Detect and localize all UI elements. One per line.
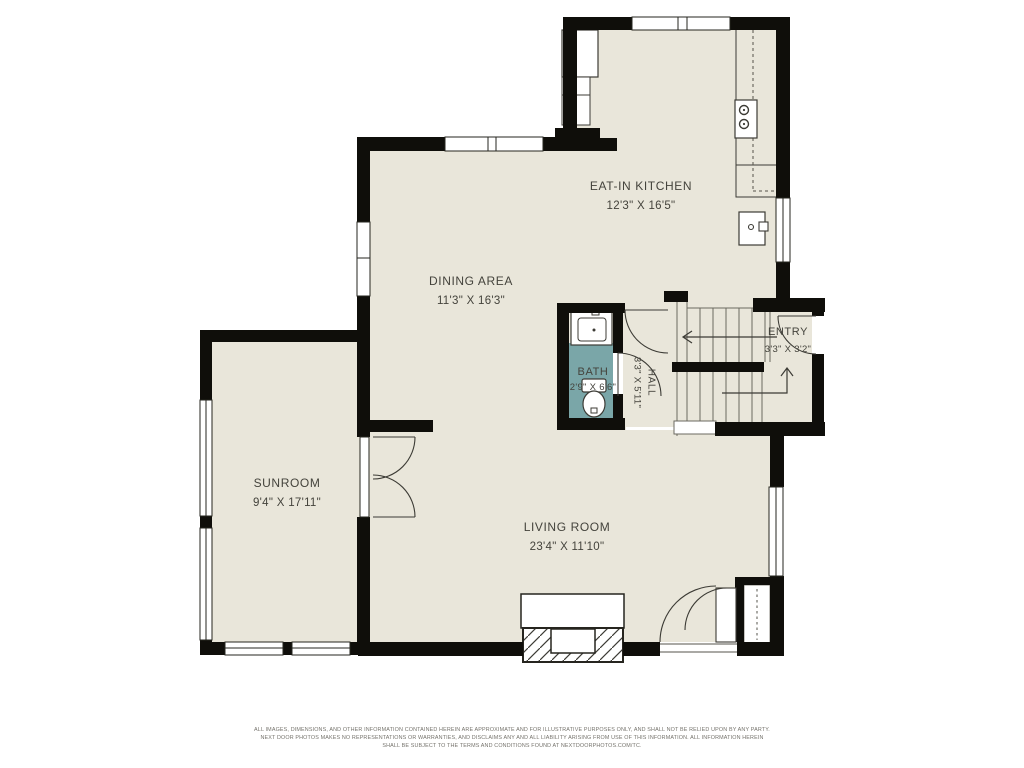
disclaimer: ALL IMAGES, DIMENSIONS, AND OTHER INFORM… [0, 726, 1024, 750]
room-name: EAT-IN KITCHEN [541, 179, 741, 193]
room-name: ENTRY [738, 326, 838, 338]
room-dimensions: 11'3" X 16'3" [371, 295, 571, 307]
room-dimensions: 9'4" X 17'11" [187, 497, 387, 509]
stove-icon [735, 100, 757, 138]
room-name: BATH [553, 366, 633, 378]
room-label-hall: HALL 3'3" X 5'11" [632, 347, 657, 419]
sunroom-bottom-window-left [225, 642, 283, 655]
stair-landing [674, 421, 716, 434]
room-dimensions: 12'3" X 16'5" [541, 200, 741, 212]
room-name: LIVING ROOM [467, 520, 667, 534]
dining-left-window [357, 222, 370, 296]
living-door-threshold [660, 642, 737, 656]
sunroom-bottom-window-right [292, 642, 350, 655]
room-dimensions: 23'4" X 11'10" [467, 541, 667, 553]
room-name: HALL [646, 347, 657, 419]
disclaimer-line-3: SHALL BE SUBJECT TO THE TERMS AND CONDIT… [0, 742, 1024, 750]
room-label-sunroom: SUNROOM 9'4" X 17'11" [187, 476, 387, 509]
kitchen-sink-icon [739, 212, 768, 245]
room-name: DINING AREA [371, 274, 571, 288]
disclaimer-line-2: NEXT DOOR PHOTOS MAKES NO REPRESENTATION… [0, 734, 1024, 742]
room-label-bath: BATH 2'9" X 6'6" [553, 366, 633, 393]
floor-plan-canvas: EAT-IN KITCHEN 12'3" X 16'5" DINING AREA… [0, 0, 1024, 768]
room-label-entry: ENTRY 3'3" X 3'2" [738, 326, 838, 355]
floor-plan-drawing [0, 0, 1024, 768]
room-label-eat-in-kitchen: EAT-IN KITCHEN 12'3" X 16'5" [541, 179, 741, 212]
room-name: SUNROOM [187, 476, 387, 490]
dining-top-window [445, 137, 543, 151]
coat-closet [744, 585, 770, 643]
room-label-living-room: LIVING ROOM 23'4" X 11'10" [467, 520, 667, 553]
sunroom-left-window-lower [200, 528, 212, 640]
fireplace [521, 594, 624, 662]
room-label-dining-area: DINING AREA 11'3" X 16'3" [371, 274, 571, 307]
kitchen-right-window [776, 198, 790, 262]
room-dimensions: 3'3" X 5'11" [632, 347, 643, 419]
kitchen-top-window [632, 17, 730, 30]
living-right-window [769, 487, 783, 576]
room-dimensions: 3'3" X 3'2" [738, 344, 838, 355]
room-dimensions: 2'9" X 6'6" [553, 382, 633, 393]
disclaimer-line-1: ALL IMAGES, DIMENSIONS, AND OTHER INFORM… [0, 726, 1024, 734]
